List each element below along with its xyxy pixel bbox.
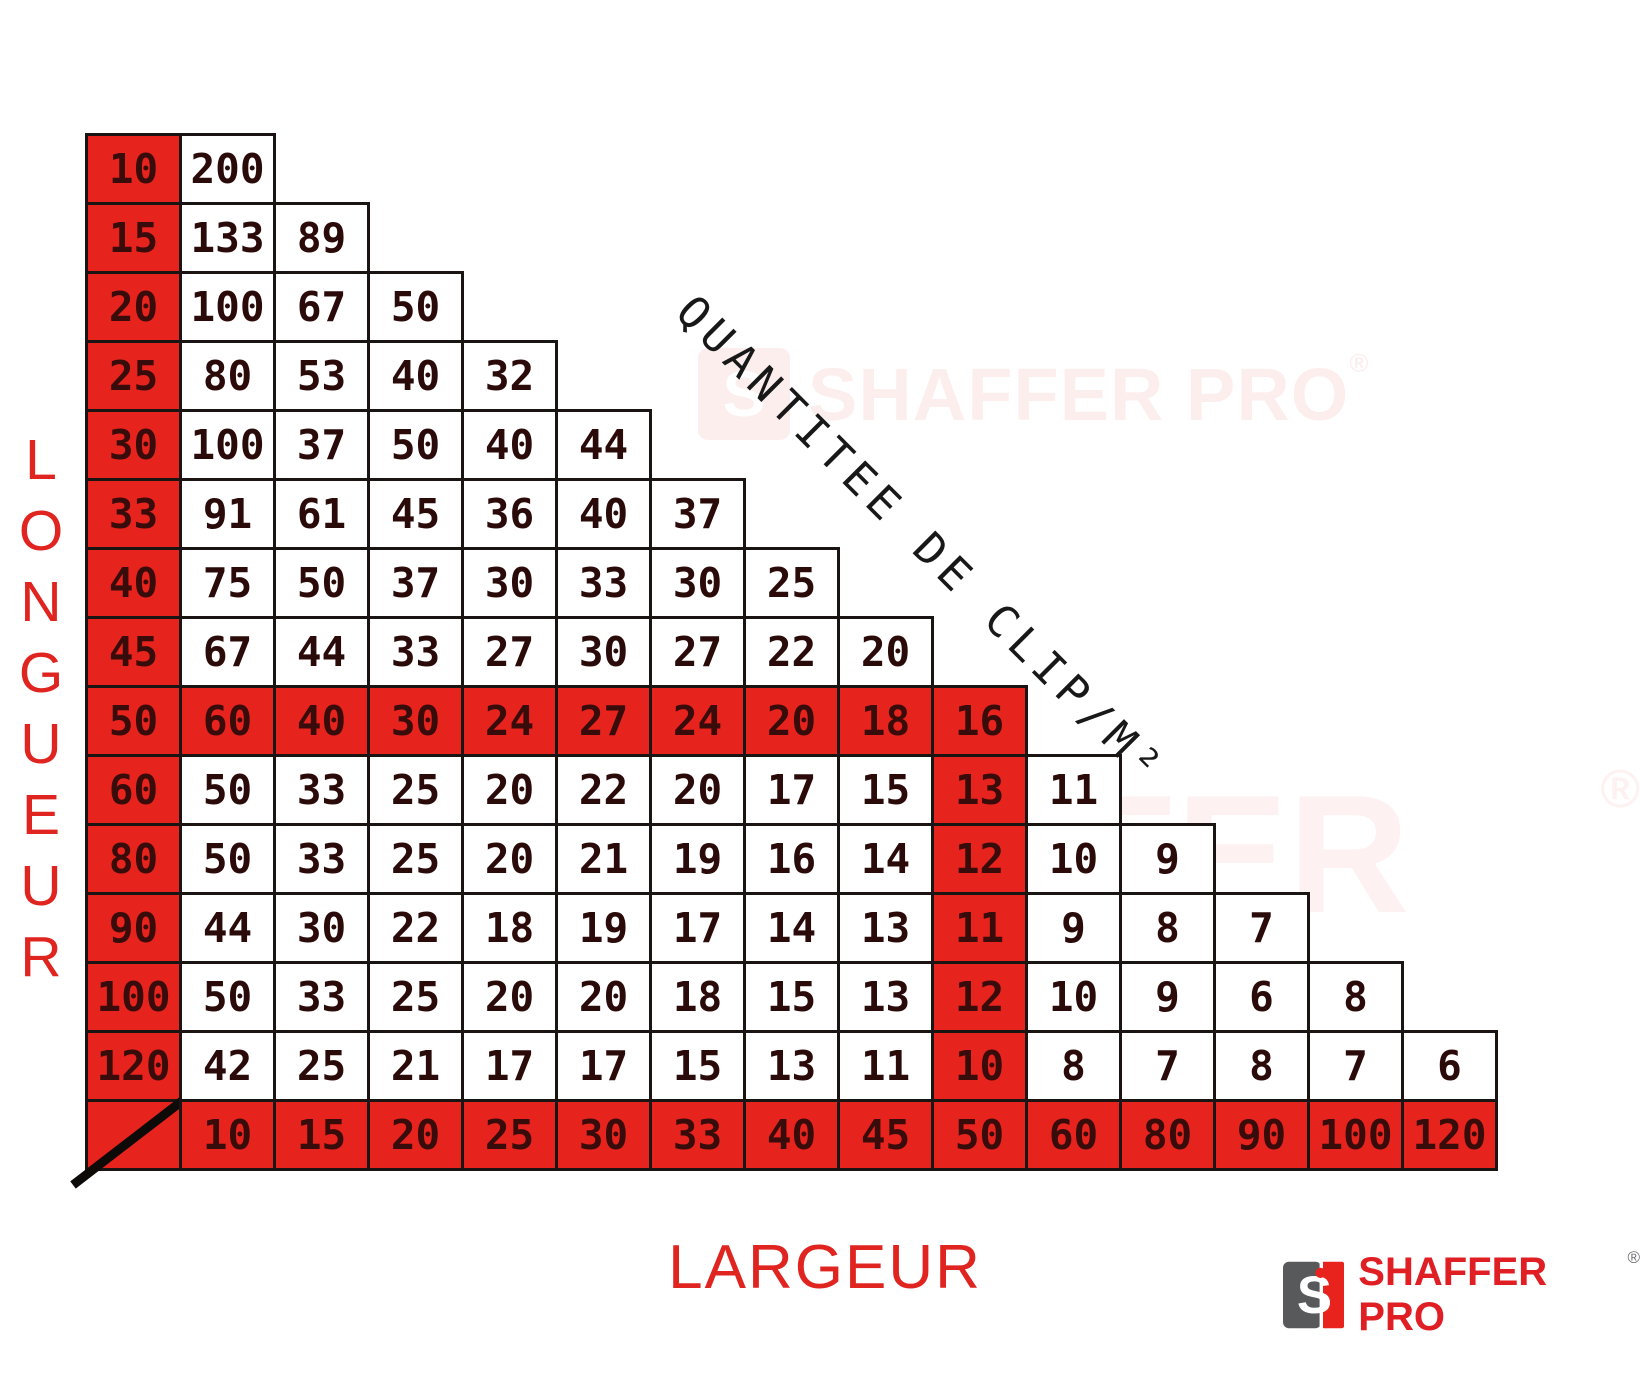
- row-header: 15: [85, 202, 182, 274]
- value-cell: 21: [367, 1030, 464, 1102]
- value-cell: 100: [179, 409, 276, 481]
- column-header-row: 101520253033404550608090100120: [85, 1099, 1498, 1171]
- value-cell: 10: [1025, 961, 1122, 1033]
- value-cell: 91: [179, 478, 276, 550]
- col-header: 25: [461, 1099, 558, 1171]
- value-cell: 13: [931, 754, 1028, 826]
- table-row: 90443022181917141311987: [85, 892, 1498, 964]
- value-cell: 25: [273, 1030, 370, 1102]
- value-cell: 80: [179, 340, 276, 412]
- value-cell: 50: [179, 961, 276, 1033]
- value-cell: 44: [555, 409, 652, 481]
- value-cell: 16: [931, 685, 1028, 757]
- value-cell: 10: [931, 1030, 1028, 1102]
- value-cell: 21: [555, 823, 652, 895]
- value-cell: 14: [837, 823, 934, 895]
- value-cell: 25: [367, 754, 464, 826]
- value-cell: 37: [367, 547, 464, 619]
- shaffer-pro-logo: S SHAFFER PRO ®: [1283, 1250, 1640, 1340]
- value-cell: 9: [1119, 961, 1216, 1033]
- table-row: 10050332520201815131210968: [85, 961, 1498, 1033]
- col-header: 80: [1119, 1099, 1216, 1171]
- value-cell: 45: [367, 478, 464, 550]
- value-cell: 40: [273, 685, 370, 757]
- corner-diagonal-cell: [85, 1099, 182, 1171]
- value-cell: 7: [1119, 1030, 1216, 1102]
- value-cell: 8: [1025, 1030, 1122, 1102]
- value-cell: 19: [555, 892, 652, 964]
- value-cell: 15: [837, 754, 934, 826]
- value-cell: 18: [649, 961, 746, 1033]
- col-header: 90: [1213, 1099, 1310, 1171]
- table-row: 80503325202119161412109: [85, 823, 1498, 895]
- col-header: 33: [649, 1099, 746, 1171]
- value-cell: 11: [1025, 754, 1122, 826]
- table-row: 201006750: [85, 271, 1498, 343]
- table-row: 1513389: [85, 202, 1498, 274]
- table-row: 10200: [85, 133, 1498, 205]
- row-header: 120: [85, 1030, 182, 1102]
- value-cell: 18: [461, 892, 558, 964]
- value-cell: 100: [179, 271, 276, 343]
- row-header: 30: [85, 409, 182, 481]
- table-row: 33916145364037: [85, 478, 1498, 550]
- row-header: 60: [85, 754, 182, 826]
- value-cell: 20: [649, 754, 746, 826]
- value-cell: 7: [1213, 892, 1310, 964]
- value-cell: 67: [179, 616, 276, 688]
- value-cell: 25: [743, 547, 840, 619]
- value-cell: 33: [273, 823, 370, 895]
- value-cell: 30: [367, 685, 464, 757]
- col-header: 60: [1025, 1099, 1122, 1171]
- value-cell: 42: [179, 1030, 276, 1102]
- value-cell: 50: [179, 754, 276, 826]
- value-cell: 40: [461, 409, 558, 481]
- value-cell: 30: [555, 616, 652, 688]
- value-cell: 30: [649, 547, 746, 619]
- value-cell: 11: [931, 892, 1028, 964]
- value-cell: 12: [931, 961, 1028, 1033]
- value-cell: 18: [837, 685, 934, 757]
- value-cell: 11: [837, 1030, 934, 1102]
- value-cell: 50: [179, 823, 276, 895]
- value-cell: 8: [1307, 961, 1404, 1033]
- y-axis-label-longueur: LONGUEUR: [12, 428, 69, 996]
- value-cell: 24: [461, 685, 558, 757]
- registered-mark: ®: [1600, 758, 1640, 820]
- row-header: 33: [85, 478, 182, 550]
- value-cell: 22: [743, 616, 840, 688]
- value-cell: 12: [931, 823, 1028, 895]
- col-header: 10: [179, 1099, 276, 1171]
- value-cell: 10: [1025, 823, 1122, 895]
- value-cell: 22: [367, 892, 464, 964]
- value-cell: 36: [461, 478, 558, 550]
- value-cell: 37: [273, 409, 370, 481]
- value-cell: 25: [367, 823, 464, 895]
- brand-name: SHAFFER PRO: [1358, 1250, 1624, 1340]
- col-header: 30: [555, 1099, 652, 1171]
- value-cell: 27: [555, 685, 652, 757]
- value-cell: 13: [837, 892, 934, 964]
- value-cell: 75: [179, 547, 276, 619]
- value-cell: 133: [179, 202, 276, 274]
- table-row: 6050332520222017151311: [85, 754, 1498, 826]
- value-cell: 9: [1025, 892, 1122, 964]
- clip-quantity-chart-page: S SHAFFER PRO ® S SHAFFER PRO ® 10200151…: [0, 0, 1640, 1382]
- value-cell: 61: [273, 478, 370, 550]
- value-cell: 50: [367, 271, 464, 343]
- table-row: 4075503730333025: [85, 547, 1498, 619]
- value-cell: 19: [649, 823, 746, 895]
- value-cell: 20: [743, 685, 840, 757]
- row-header: 80: [85, 823, 182, 895]
- value-cell: 17: [555, 1030, 652, 1102]
- row-header: 90: [85, 892, 182, 964]
- value-cell: 20: [555, 961, 652, 1033]
- value-cell: 6: [1213, 961, 1310, 1033]
- value-cell: 9: [1119, 823, 1216, 895]
- row-header: 10: [85, 133, 182, 205]
- col-header: 50: [931, 1099, 1028, 1171]
- row-header: 25: [85, 340, 182, 412]
- value-cell: 24: [649, 685, 746, 757]
- row-header: 100: [85, 961, 182, 1033]
- registered-mark: ®: [1627, 1248, 1640, 1268]
- value-cell: 20: [461, 823, 558, 895]
- row-header: 45: [85, 616, 182, 688]
- value-cell: 44: [179, 892, 276, 964]
- col-header: 45: [837, 1099, 934, 1171]
- value-cell: 8: [1119, 892, 1216, 964]
- value-cell: 44: [273, 616, 370, 688]
- svg-text:S: S: [1297, 1266, 1332, 1325]
- value-cell: 33: [555, 547, 652, 619]
- value-cell: 60: [179, 685, 276, 757]
- col-header: 20: [367, 1099, 464, 1171]
- value-cell: 7: [1307, 1030, 1404, 1102]
- value-cell: 30: [461, 547, 558, 619]
- value-cell: 50: [367, 409, 464, 481]
- table-row: 12042252117171513111087876: [85, 1030, 1498, 1102]
- value-cell: 25: [367, 961, 464, 1033]
- value-cell: 32: [461, 340, 558, 412]
- col-header: 40: [743, 1099, 840, 1171]
- value-cell: 50: [273, 547, 370, 619]
- shaffer-pro-logo-icon: S: [1283, 1259, 1344, 1331]
- value-cell: 17: [649, 892, 746, 964]
- value-cell: 40: [555, 478, 652, 550]
- value-cell: 14: [743, 892, 840, 964]
- value-cell: 15: [649, 1030, 746, 1102]
- clip-quantity-table: 1020015133892010067502580534032301003750…: [85, 133, 1498, 1171]
- col-header: 15: [273, 1099, 370, 1171]
- x-axis-label-largeur: LARGEUR: [655, 1232, 995, 1303]
- value-cell: 20: [461, 754, 558, 826]
- value-cell: 89: [273, 202, 370, 274]
- value-cell: 27: [649, 616, 746, 688]
- table-row: 456744332730272220: [85, 616, 1498, 688]
- value-cell: 8: [1213, 1030, 1310, 1102]
- value-cell: 20: [461, 961, 558, 1033]
- value-cell: 200: [179, 133, 276, 205]
- value-cell: 20: [837, 616, 934, 688]
- value-cell: 22: [555, 754, 652, 826]
- col-header: 100: [1307, 1099, 1404, 1171]
- value-cell: 17: [743, 754, 840, 826]
- row-header: 50: [85, 685, 182, 757]
- value-cell: 13: [837, 961, 934, 1033]
- value-cell: 33: [367, 616, 464, 688]
- value-cell: 53: [273, 340, 370, 412]
- table-row: 50604030242724201816: [85, 685, 1498, 757]
- value-cell: 17: [461, 1030, 558, 1102]
- value-cell: 37: [649, 478, 746, 550]
- value-cell: 16: [743, 823, 840, 895]
- value-cell: 15: [743, 961, 840, 1033]
- value-cell: 33: [273, 961, 370, 1033]
- value-cell: 30: [273, 892, 370, 964]
- value-cell: 40: [367, 340, 464, 412]
- row-header: 40: [85, 547, 182, 619]
- value-cell: 13: [743, 1030, 840, 1102]
- value-cell: 27: [461, 616, 558, 688]
- value-cell: 67: [273, 271, 370, 343]
- row-header: 20: [85, 271, 182, 343]
- value-cell: 33: [273, 754, 370, 826]
- value-cell: 6: [1401, 1030, 1498, 1102]
- col-header: 120: [1401, 1099, 1498, 1171]
